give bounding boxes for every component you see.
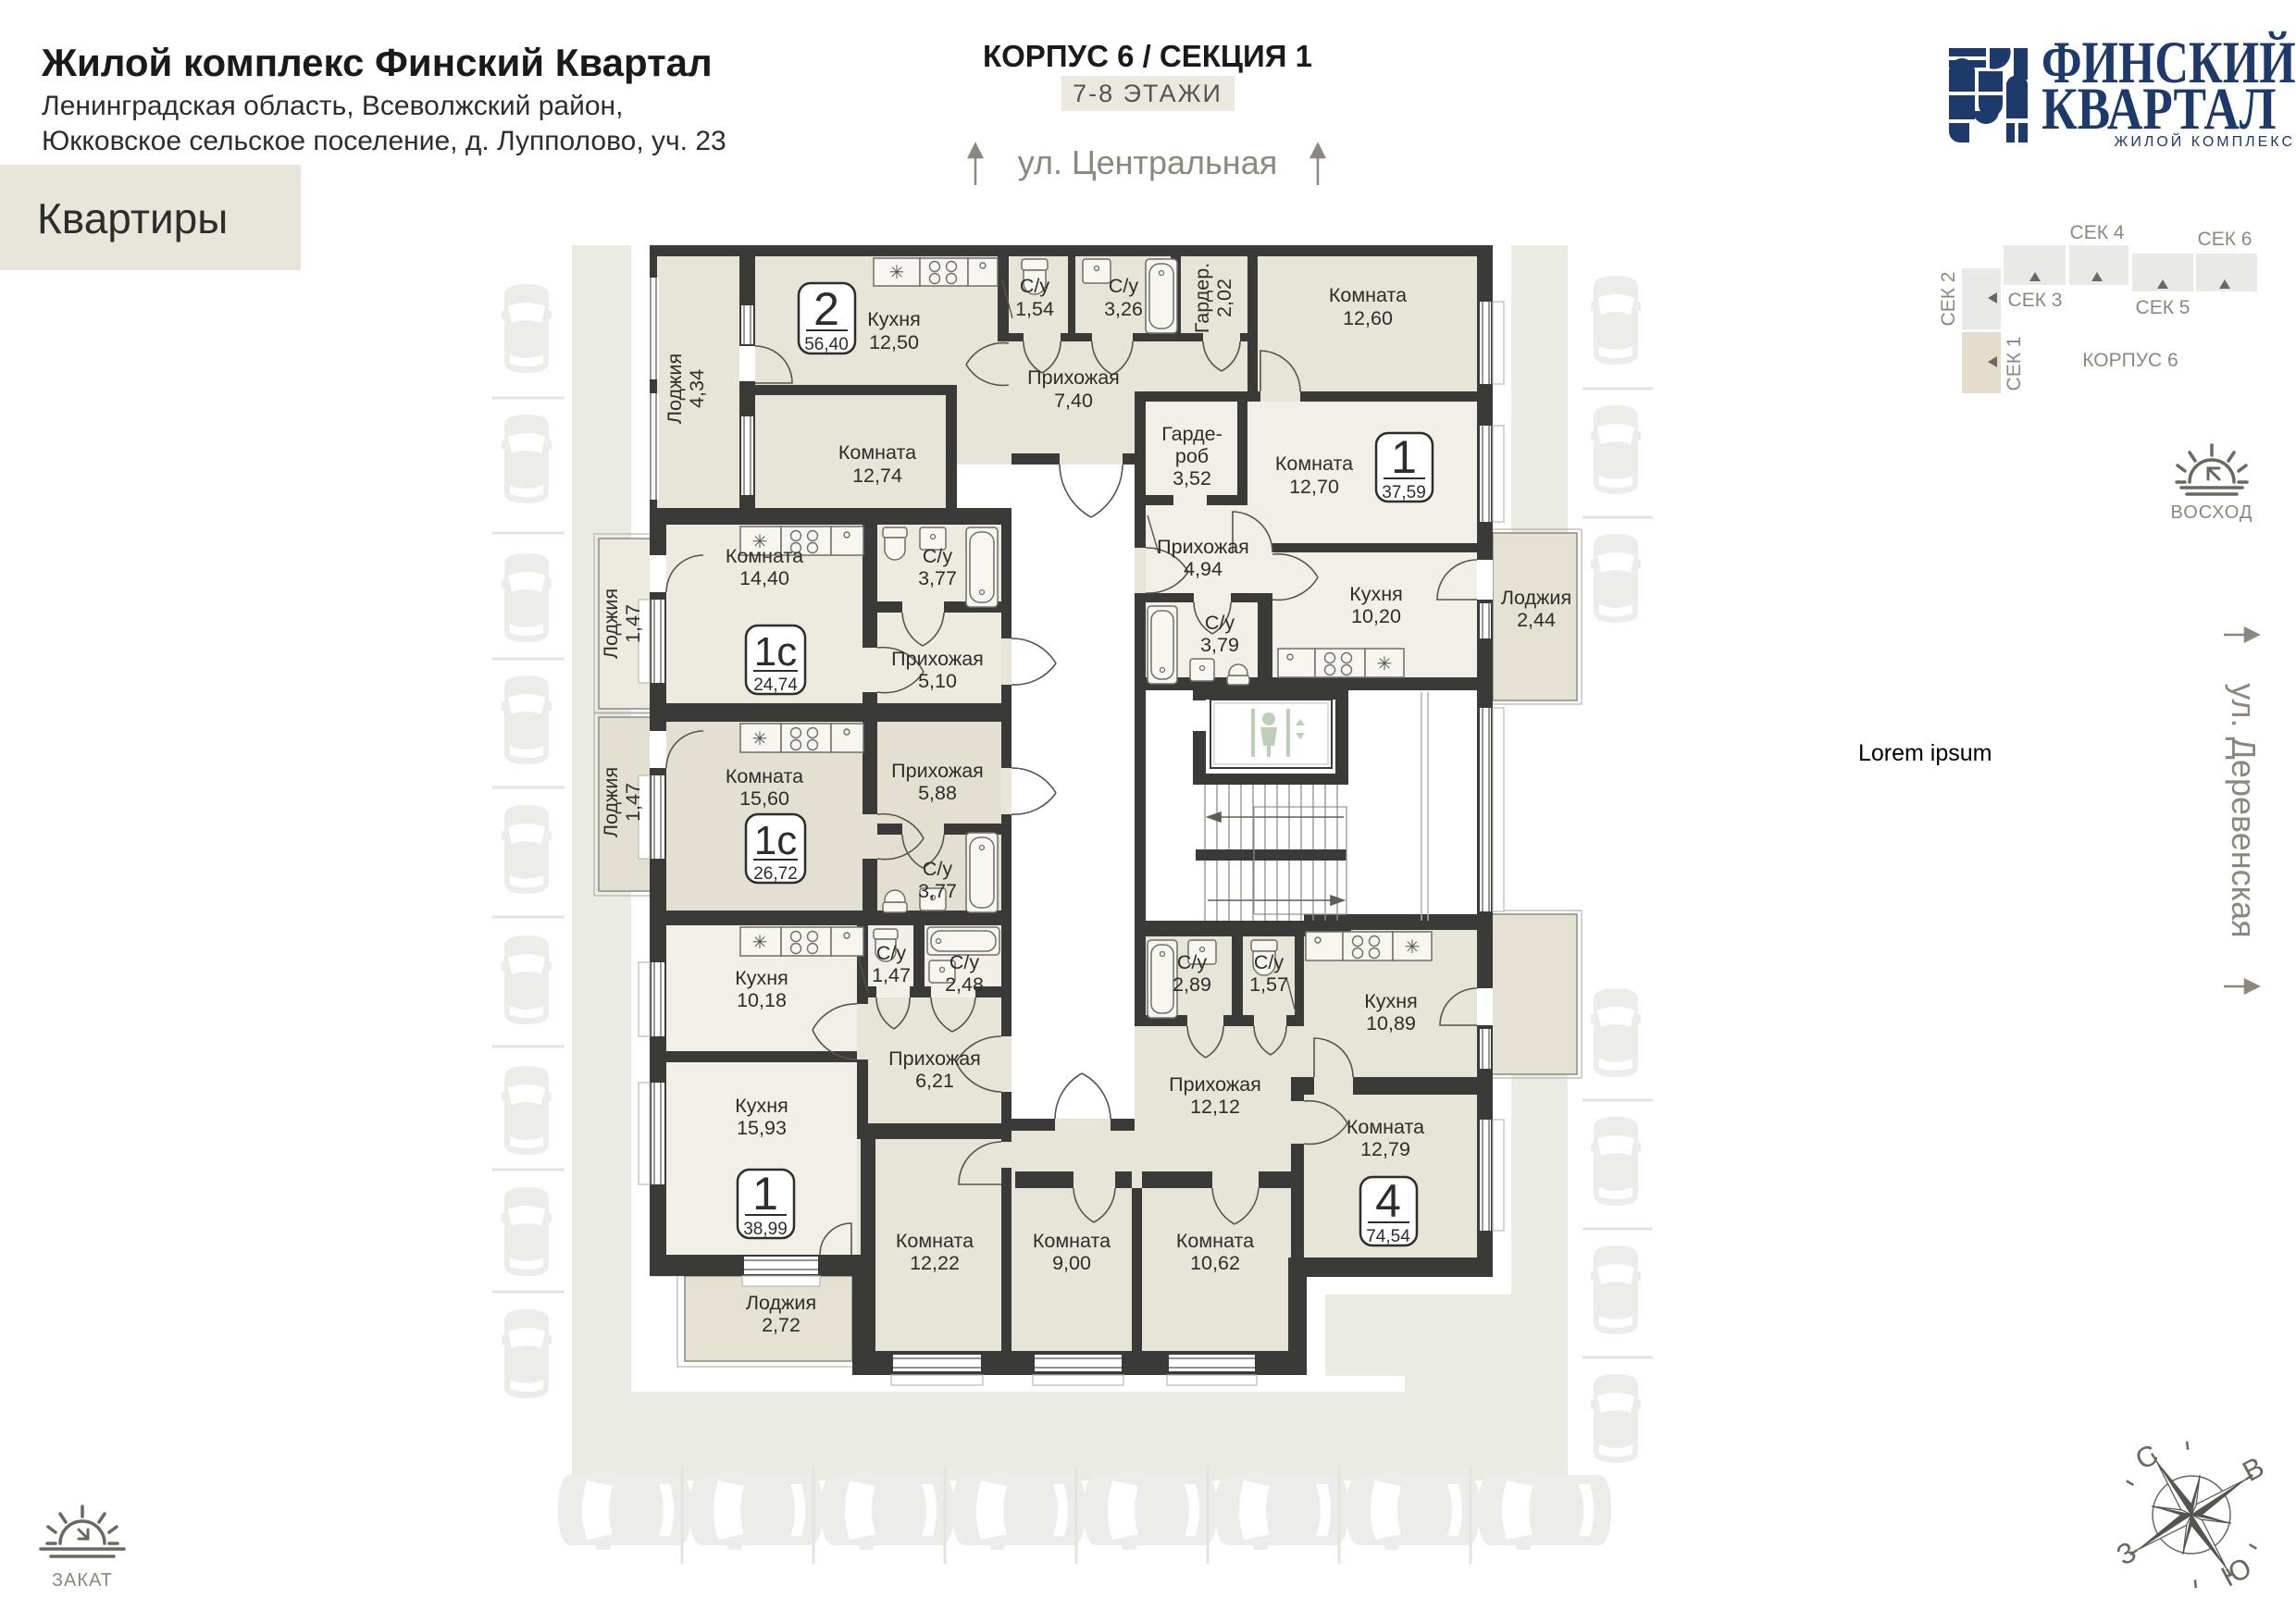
svg-text:ул. Центральная: ул. Центральная — [1018, 143, 1277, 181]
svg-text:Лоджия: Лоджия — [1501, 587, 1571, 609]
svg-text:3,77: 3,77 — [918, 567, 957, 589]
svg-text:Жилой комплекс Финский Квартал: Жилой комплекс Финский Квартал — [41, 41, 713, 84]
svg-text:2,02: 2,02 — [1213, 279, 1235, 317]
svg-text:СЕК 5: СЕК 5 — [2136, 297, 2191, 318]
svg-text:Комната: Комната — [1033, 1230, 1111, 1252]
svg-text:Прихожая: Прихожая — [1027, 366, 1120, 389]
svg-text:Комната: Комната — [1176, 1230, 1254, 1252]
svg-text:С/у: С/у — [1109, 275, 1139, 297]
svg-text:Кухня: Кухня — [735, 967, 788, 989]
svg-text:КВАРТАЛ: КВАРТАЛ — [2042, 75, 2277, 142]
svg-text:С/у: С/у — [1254, 951, 1285, 973]
svg-text:15,93: 15,93 — [737, 1117, 787, 1139]
svg-text:Гардер.: Гардер. — [1191, 263, 1213, 333]
svg-text:Прихожая: Прихожая — [891, 648, 984, 670]
svg-text:10,18: 10,18 — [737, 989, 787, 1011]
svg-text:Прихожая: Прихожая — [891, 760, 984, 782]
svg-text:С/у: С/у — [923, 858, 953, 880]
svg-text:Комната: Комната — [1275, 452, 1353, 475]
svg-text:1,47: 1,47 — [872, 964, 911, 986]
svg-text:✳: ✳ — [752, 933, 768, 953]
svg-text:37,59: 37,59 — [1382, 483, 1426, 502]
svg-text:6,21: 6,21 — [915, 1070, 954, 1092]
svg-text:С/у: С/у — [923, 545, 953, 567]
svg-text:✳: ✳ — [1405, 937, 1421, 958]
svg-text:СЕК 3: СЕК 3 — [2008, 290, 2063, 311]
svg-text:1,47: 1,47 — [622, 604, 644, 643]
svg-text:Лоджия: Лоджия — [746, 1292, 816, 1314]
svg-text:56,40: 56,40 — [804, 335, 849, 354]
svg-text:7-8 ЭТАЖИ: 7-8 ЭТАЖИ — [1073, 80, 1222, 107]
svg-text:26,72: 26,72 — [753, 864, 798, 884]
svg-text:1: 1 — [1391, 431, 1417, 483]
svg-text:Кухня: Кухня — [735, 1095, 788, 1117]
svg-text:ЗАКАТ: ЗАКАТ — [52, 1570, 113, 1591]
svg-text:10,62: 10,62 — [1190, 1252, 1240, 1274]
svg-text:12,22: 12,22 — [910, 1252, 960, 1274]
svg-text:С/у: С/у — [876, 942, 907, 964]
svg-text:3,26: 3,26 — [1104, 298, 1143, 320]
svg-text:24,74: 24,74 — [753, 675, 798, 695]
svg-text:1,47: 1,47 — [622, 783, 644, 822]
svg-text:Квартиры: Квартиры — [37, 194, 228, 242]
svg-text:С/у: С/у — [1177, 951, 1208, 973]
svg-text:Комната: Комната — [838, 441, 916, 464]
svg-text:Ленинградская область, Всеволж: Ленинградская область, Всеволжский район… — [42, 91, 623, 121]
svg-text:Прихожая: Прихожая — [888, 1047, 981, 1070]
svg-text:КОРПУС 6 / СЕКЦИЯ 1: КОРПУС 6 / СЕКЦИЯ 1 — [983, 39, 1312, 73]
svg-text:2: 2 — [813, 283, 839, 335]
svg-text:12,79: 12,79 — [1360, 1138, 1410, 1160]
svg-text:2,48: 2,48 — [945, 973, 984, 996]
svg-text:Комната: Комната — [896, 1230, 974, 1252]
svg-text:Лоджия: Лоджия — [664, 353, 686, 424]
svg-text:Лоджия: Лоджия — [600, 588, 622, 659]
svg-text:Комната: Комната — [1347, 1116, 1424, 1138]
svg-text:3,77: 3,77 — [918, 880, 957, 902]
svg-text:С/у: С/у — [1205, 612, 1235, 634]
svg-text:ЖИЛОЙ КОМПЛЕКС: ЖИЛОЙ КОМПЛЕКС — [2115, 132, 2295, 150]
svg-text:15,60: 15,60 — [739, 787, 789, 810]
svg-text:12,70: 12,70 — [1289, 476, 1339, 498]
svg-text:3,52: 3,52 — [1173, 467, 1211, 489]
svg-text:Комната: Комната — [726, 545, 803, 567]
svg-text:Кухня: Кухня — [1364, 990, 1418, 1012]
svg-text:74,54: 74,54 — [1366, 1227, 1410, 1246]
svg-text:Комната: Комната — [726, 765, 803, 787]
svg-text:Юкковское сельское поселение,: Юкковское сельское поселение, д. Лупполо… — [42, 126, 726, 156]
svg-text:роб: роб — [1175, 445, 1209, 467]
svg-text:1с: 1с — [754, 629, 797, 675]
svg-text:С/у: С/у — [1020, 275, 1050, 297]
svg-text:КОРПУС 6: КОРПУС 6 — [2082, 350, 2178, 371]
svg-text:Комната: Комната — [1329, 284, 1407, 306]
svg-text:2,44: 2,44 — [1517, 609, 1556, 631]
svg-text:1,54: 1,54 — [1015, 298, 1054, 320]
svg-text:38,99: 38,99 — [743, 1220, 788, 1239]
svg-text:С/у: С/у — [949, 951, 980, 973]
svg-text:1с: 1с — [754, 818, 797, 863]
svg-text:2,89: 2,89 — [1173, 973, 1211, 996]
svg-text:СЕК 1: СЕК 1 — [2004, 337, 2025, 391]
svg-text:ВОСХОД: ВОСХОД — [2171, 502, 2253, 523]
svg-text:✳: ✳ — [889, 263, 905, 283]
svg-text:12,12: 12,12 — [1190, 1096, 1240, 1118]
svg-text:3,79: 3,79 — [1200, 634, 1239, 656]
svg-text:4,94: 4,94 — [1184, 558, 1222, 580]
svg-text:Прихожая: Прихожая — [1169, 1073, 1261, 1096]
svg-text:9,00: 9,00 — [1052, 1252, 1091, 1274]
svg-text:Прихожая: Прихожая — [1157, 536, 1249, 558]
svg-text:Гарде-: Гарде- — [1161, 423, 1222, 445]
svg-text:✳: ✳ — [752, 729, 768, 750]
svg-text:1: 1 — [752, 1168, 778, 1220]
svg-text:СЕК 2: СЕК 2 — [1938, 272, 1959, 327]
svg-text:7,40: 7,40 — [1054, 390, 1093, 412]
svg-text:Лоджия: Лоджия — [600, 767, 622, 837]
svg-text:10,20: 10,20 — [1351, 605, 1401, 627]
svg-text:2,72: 2,72 — [762, 1314, 800, 1336]
svg-text:Lorem ipsum: Lorem ipsum — [1858, 740, 1992, 766]
svg-text:ул. Деревенская: ул. Деревенская — [2225, 683, 2263, 937]
svg-text:СЕК 4: СЕК 4 — [2070, 222, 2125, 243]
svg-text:12,50: 12,50 — [869, 331, 919, 353]
svg-text:14,40: 14,40 — [739, 567, 789, 589]
svg-text:Кухня: Кухня — [867, 308, 921, 330]
svg-text:4,34: 4,34 — [686, 369, 708, 408]
svg-text:4: 4 — [1375, 1175, 1401, 1227]
svg-text:5,88: 5,88 — [918, 782, 957, 804]
svg-text:10,89: 10,89 — [1366, 1012, 1416, 1035]
svg-text:Кухня: Кухня — [1349, 583, 1403, 605]
svg-text:СЕК 6: СЕК 6 — [2198, 229, 2253, 250]
svg-text:✳: ✳ — [1377, 654, 1393, 675]
svg-text:12,74: 12,74 — [852, 465, 902, 487]
svg-text:12,60: 12,60 — [1343, 307, 1393, 329]
svg-text:1,57: 1,57 — [1249, 973, 1288, 996]
svg-text:5,10: 5,10 — [918, 670, 957, 692]
